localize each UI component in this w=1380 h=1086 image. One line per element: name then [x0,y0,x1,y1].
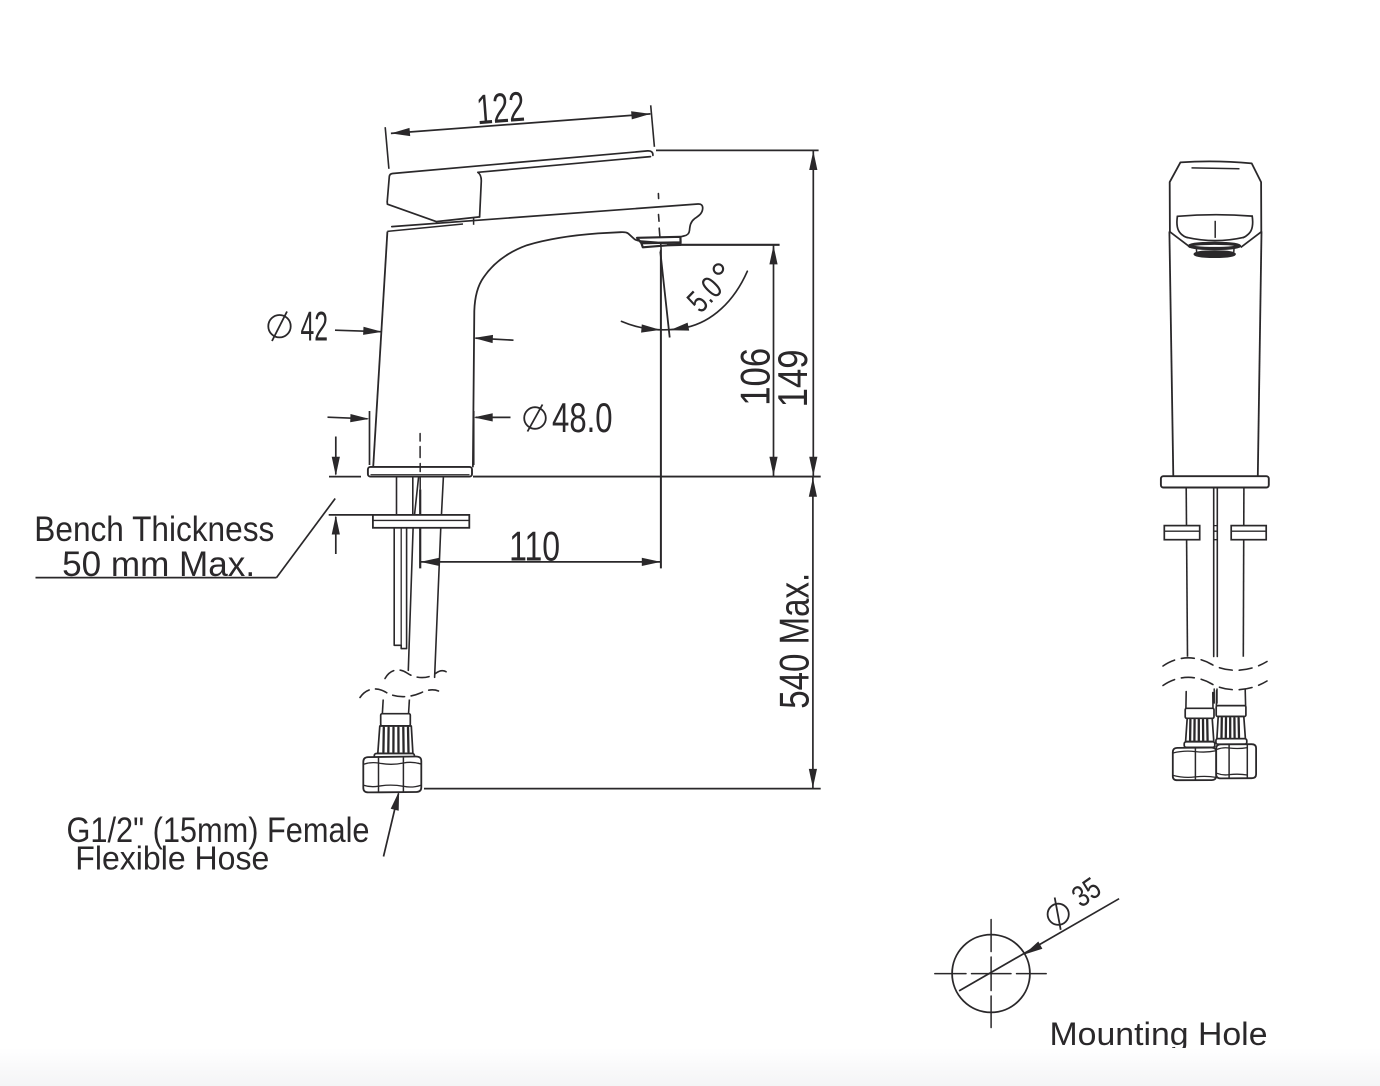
svg-text:Flexible Hose: Flexible Hose [75,839,269,876]
svg-text:110: 110 [509,523,560,570]
svg-text:42: 42 [301,302,329,349]
svg-text:149: 149 [769,349,816,407]
svg-text:Bench Thickness: Bench Thickness [34,510,274,549]
svg-text:50 mm Max.: 50 mm Max. [62,545,255,584]
svg-text:122: 122 [475,83,526,133]
svg-text:Mounting Hole: Mounting Hole [1050,1016,1268,1052]
svg-text:540 Max.: 540 Max. [770,573,817,709]
svg-text:48.0: 48.0 [552,394,613,441]
